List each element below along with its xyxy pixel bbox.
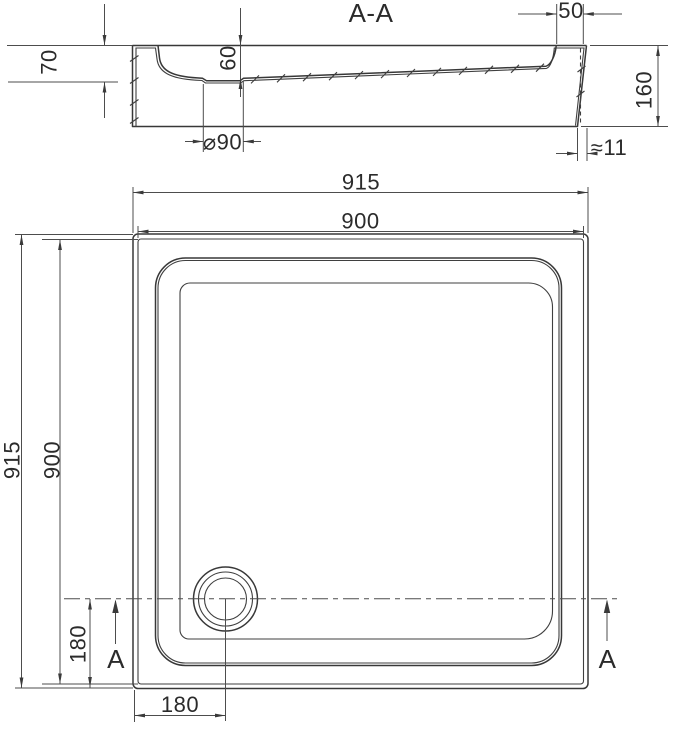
dim-drain-diameter: ⌀90 [203,130,242,155]
arrowhead [88,677,92,688]
dim-overall-height: 160 [632,71,657,109]
arrowhead [573,230,584,234]
plan-rim-inner-inner-line [158,261,559,664]
arrowhead [103,82,107,93]
dim-overall-width: 915 [342,170,380,195]
plan-floor-boundary [180,283,553,639]
arrowhead [193,140,204,144]
arrowhead [58,240,62,251]
arrowhead [20,678,24,689]
arrowhead [243,140,254,144]
dim-edge-depth: 70 [37,49,62,74]
section-marker-a-right: A [599,644,617,674]
section-wall-hatch-ticks [130,56,586,124]
arrowhead [567,152,578,156]
section-floor-hatch-ticks [251,64,544,84]
dim-drain-offset-left: 180 [66,625,91,663]
dim-base-offset: ≈11 [591,135,627,160]
dim-overall-height-left: 915 [0,441,25,479]
section-marker-a-left: A [107,644,125,674]
arrowhead [58,674,62,685]
arrowhead [656,116,660,127]
dim-drain-depth: 60 [216,45,241,70]
section-outer-boundary [133,46,587,127]
plan-inner-edge-900 [138,239,584,684]
plan-rim-inner-outer-line [156,258,562,666]
section-marker-left [112,600,118,645]
section-title-label: A-A [349,0,394,28]
dim-drain-offset-bottom: 180 [161,692,199,717]
technical-drawing-page: A-A 70 60 ⌀90 50 160 ≈11 [0,0,678,735]
arrowhead [215,714,226,718]
shower-tray-drawing: A-A 70 60 ⌀90 50 160 ≈11 [0,0,678,735]
arrowhead [103,35,107,46]
arrowhead [546,12,557,16]
arrowhead [88,599,92,610]
dim-inner-height-left: 900 [40,441,65,479]
arrowhead [656,46,660,57]
section-arrow-up-icon [112,600,118,614]
dim-lines-base-offset [556,128,592,161]
arrowhead [239,35,243,46]
dim-lines-70 [7,4,133,118]
arrowhead [135,714,146,718]
section-marker-right [604,600,610,642]
arrowhead [133,191,144,195]
dim-inner-width: 900 [341,209,379,234]
plan-view: 915 900 915 900 180 180 A A [0,170,620,723]
arrowhead [20,235,24,246]
arrowhead [138,230,149,234]
section-arrow-up-icon [604,600,610,614]
section-view: A-A 70 60 ⌀90 50 160 ≈11 [7,0,668,161]
arrowhead [583,12,594,16]
dim-rim-width: 50 [558,0,583,23]
arrowhead [578,191,589,195]
